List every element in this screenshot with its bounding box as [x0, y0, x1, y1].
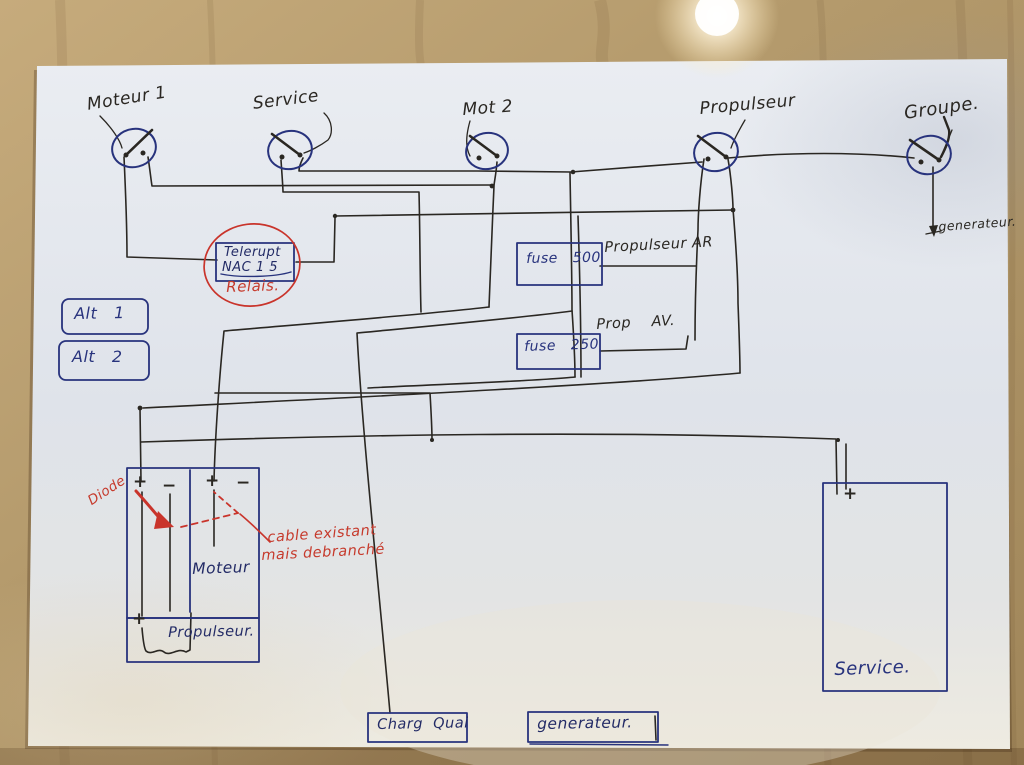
battery-section-label-moteur: Moteur: [192, 560, 250, 578]
relay-box-line1: Telerupt: [224, 246, 281, 259]
legend-alt2: Alt 2: [72, 349, 123, 365]
fuse250-label: fuse 250: [524, 337, 599, 354]
battery-terminal-minus2: −: [236, 475, 251, 492]
battery-terminal-plus1: +: [133, 474, 148, 491]
charger-box-label: Charg Quai: [377, 716, 469, 732]
photo-of-wiring-diagram: Moteur 1 Service Mot 2 Propulseur Groupe…: [0, 0, 1024, 765]
relay-note-relais: Relais.: [226, 278, 280, 295]
wire-down-to-battery-plus1: [140, 408, 141, 481]
generator-box-underline: [530, 744, 668, 745]
service-battery-terminal-plus: +: [843, 486, 858, 503]
wire-generator-box-hook: [655, 716, 656, 740]
battery-lower-label-propulseur: Propulseur.: [168, 624, 255, 640]
battery-lower-terminal-plus: +: [132, 611, 147, 628]
battery-terminal-plus2: +: [205, 473, 220, 490]
fuse500-label: fuse 500: [526, 251, 601, 266]
legend-alt1: Alt 1: [74, 305, 125, 322]
battery-terminal-minus1: −: [162, 478, 177, 495]
switch-label-mot2: Mot 2: [462, 98, 514, 118]
generator-box-label: generateur.: [537, 715, 633, 732]
relay-box-line2: NAC 1 5: [222, 261, 278, 274]
service-battery-label: Service.: [834, 658, 911, 679]
